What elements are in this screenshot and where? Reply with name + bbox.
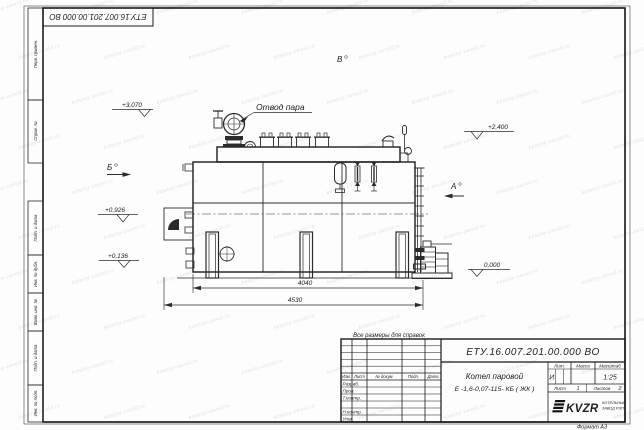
door-handle xyxy=(168,219,179,230)
elevation-text: +0,136 xyxy=(108,253,128,260)
view-arrow-v: В xyxy=(337,55,347,64)
list-value: 1 xyxy=(576,386,579,392)
steam-outlet-label: Отвод пара xyxy=(256,102,305,112)
listov-label: Листов xyxy=(593,386,611,391)
elevation-text: +2,400 xyxy=(488,124,508,131)
company-name-line1: КОТЕЛЬНЫЙ xyxy=(602,401,626,405)
logo-text: KVZR xyxy=(566,403,599,415)
margin-label-podp-data-lower: Подп. и дата xyxy=(33,344,38,372)
col-header-izm: Изм. xyxy=(342,374,351,379)
elevation-mark-3070: +3,070 xyxy=(112,102,153,117)
steam-outlet-callout: Отвод пара xyxy=(240,102,313,123)
dim-text-inner: 4040 xyxy=(298,280,313,287)
margin-column-labels: Перв. примен. Справ. № Подп. и дата Инв.… xyxy=(33,40,38,417)
margin-label-sprav-no: Справ. № xyxy=(33,121,38,141)
masshtab-header: Масштаб xyxy=(599,364,621,369)
row-utv: Утв. xyxy=(343,417,353,422)
top-stamp-text: ЕТУ.16.007.201.00.000 ВО xyxy=(49,12,146,21)
view-label-a: А xyxy=(450,182,456,191)
margin-label-inv-no-podl: Инв. № подл. xyxy=(33,390,38,417)
lit-value: И xyxy=(549,375,555,382)
view-direction-mark xyxy=(115,164,118,167)
row-prov: Пров. xyxy=(343,389,355,394)
sheet-borders xyxy=(24,6,630,424)
elevation-text: 0,000 xyxy=(484,262,501,269)
margin-label-vzam-inv-no: Взам. инв. № xyxy=(33,298,38,325)
dimension-4530: 4530 xyxy=(164,277,423,310)
elevation-text: +3,070 xyxy=(122,102,142,109)
margin-label-perv-primen: Перв. примен. xyxy=(33,40,38,69)
elevation-mark-0000: 0,000 xyxy=(468,262,510,277)
view-arrowhead xyxy=(444,194,453,199)
listov-value: 2 xyxy=(617,386,621,392)
top-stamp: ЕТУ.16.007.201.00.000 ВО xyxy=(43,8,153,26)
col-header-doc: № докум. xyxy=(375,374,393,379)
massa-header: Масса xyxy=(576,364,590,369)
steam-valve-assembly xyxy=(213,111,245,148)
dimension-4040: 4040 xyxy=(193,274,423,293)
boiler-view xyxy=(164,111,452,279)
lit-header: Лит. xyxy=(553,364,565,369)
margin-label-inv-no-dubl: Инв. № дубл. xyxy=(33,261,38,287)
row-nkontr: Н.контр. xyxy=(343,410,362,415)
elevation-mark-0136: +0,136 xyxy=(99,253,139,268)
view-direction-mark xyxy=(345,56,348,59)
drum-dome xyxy=(245,142,256,148)
gauge-glasses xyxy=(355,162,378,191)
company-logo: KVZR КОТЕЛЬНЫЙ ЗАВОД РЭП xyxy=(552,400,626,415)
margin-label-podp-data-upper: Подп. и дата xyxy=(33,214,38,242)
view-arrow-a: А xyxy=(444,182,464,198)
row-razrab: Разраб. xyxy=(343,382,360,387)
dim-text-overall: 4530 xyxy=(288,297,303,304)
product-name-line2: Е -1,6-0,07-115- КБ ( ЖК ) xyxy=(455,386,535,393)
masshtab-value: 1:25 xyxy=(603,375,617,382)
elevation-mark-0926: +0,926 xyxy=(98,207,138,222)
reference-note: Все размеры для справок xyxy=(353,333,426,339)
view-label-v: В xyxy=(337,55,343,64)
top-hatches xyxy=(259,133,330,147)
format-label: Формат А3 xyxy=(577,425,608,430)
col-header-data: Дата xyxy=(426,374,439,379)
outer-border xyxy=(24,6,630,424)
support-legs xyxy=(206,232,409,278)
view-label-b: Б xyxy=(107,163,112,172)
leader-arrowhead xyxy=(240,117,249,123)
view-arrowhead xyxy=(123,172,132,177)
product-name-line1: Котел паровой xyxy=(466,372,524,381)
sight-glass xyxy=(219,246,235,262)
company-name-line2: ЗАВОД РЭП xyxy=(602,407,624,411)
water-column xyxy=(335,163,347,193)
drawing-frame xyxy=(43,8,625,422)
elevation-text: +0,926 xyxy=(105,207,125,214)
right-deck-fittings xyxy=(380,126,412,163)
view-direction-mark xyxy=(459,183,462,186)
front-door xyxy=(164,208,193,240)
blueprint-linework: Перв. примен. Справ. № Подп. и дата Инв.… xyxy=(0,0,644,430)
document-designation: ЕТУ.16.007.201.00.000 ВО xyxy=(466,347,600,358)
boiler-body xyxy=(186,147,428,272)
list-label: Лист xyxy=(553,386,566,391)
logo-bars-icon xyxy=(552,400,565,412)
drawing-sheet: kotelny-zavod.rukotelny-zavod.rukotelny-… xyxy=(0,0,644,430)
col-header-list: Лист xyxy=(353,374,365,379)
view-arrow-b: Б xyxy=(107,163,131,177)
col-header-podp: Подп. xyxy=(408,374,419,379)
elevation-mark-2400: +2,400 xyxy=(464,124,514,139)
row-tkontr: Т.контр. xyxy=(343,396,362,401)
